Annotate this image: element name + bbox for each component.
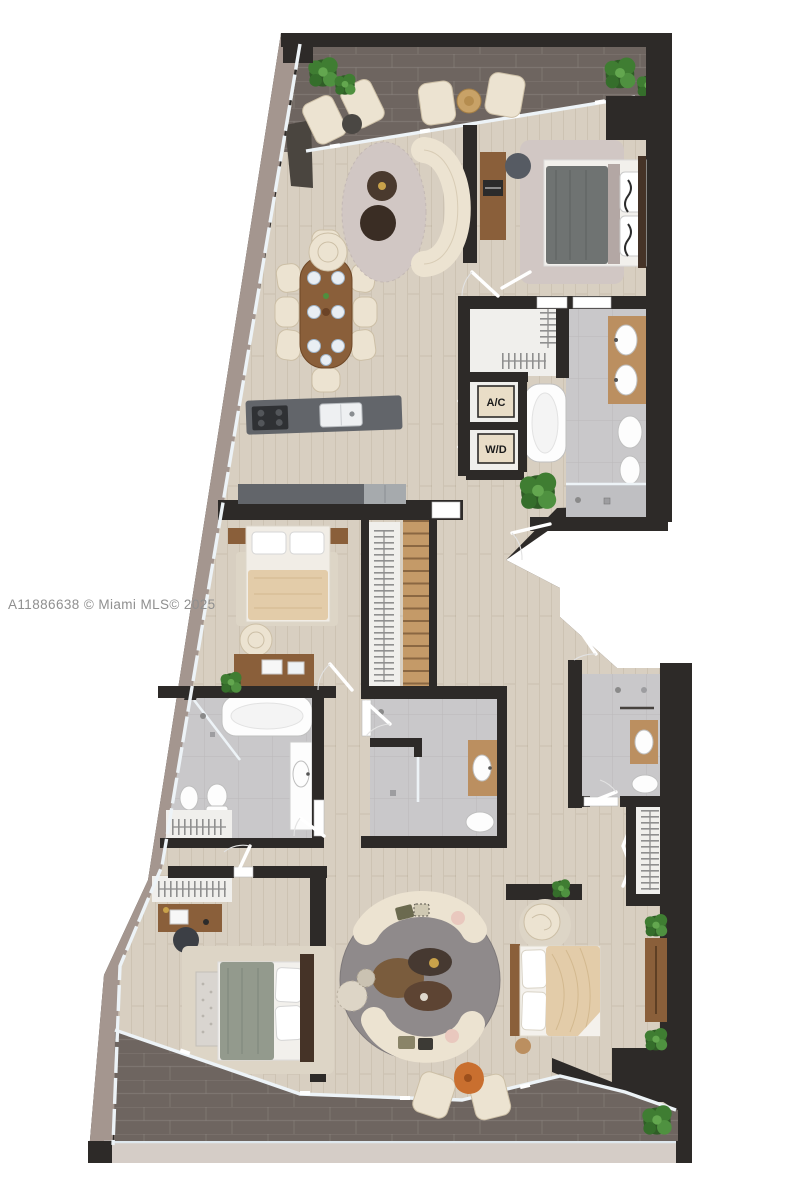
bidet	[620, 456, 640, 484]
floor-plan-page: A/C W/D	[0, 0, 802, 1200]
toilet	[207, 784, 227, 808]
shower-drain-icon	[390, 790, 396, 796]
shower-head-icon	[575, 497, 581, 503]
plant-icon	[520, 473, 556, 509]
plant-icon	[645, 914, 667, 936]
sink	[615, 365, 637, 395]
closet-hall-strip	[369, 522, 400, 688]
wall-block-top-right	[606, 96, 650, 140]
accent-chair	[309, 233, 347, 271]
headboard	[638, 156, 646, 268]
sink	[615, 325, 637, 355]
coffee-table	[360, 205, 396, 241]
toilet	[618, 416, 642, 448]
walk-in-closet	[470, 300, 556, 376]
pouf	[357, 969, 375, 987]
closet-office	[152, 876, 232, 902]
plant-icon	[221, 672, 242, 693]
laptop	[262, 660, 282, 674]
corner-block-bottom-left	[88, 1141, 112, 1163]
cooktop	[252, 405, 289, 430]
bed-throw	[608, 164, 620, 264]
accent-chair	[240, 624, 272, 656]
kitchen-back-counter	[238, 484, 364, 504]
round-chair	[524, 904, 560, 940]
pillow	[252, 532, 286, 554]
bathroom-center	[370, 694, 498, 838]
pillow	[521, 992, 546, 1031]
toilet	[632, 775, 658, 793]
plant-icon	[552, 879, 570, 897]
bidet	[180, 786, 198, 810]
shower-drain-icon	[641, 687, 647, 693]
papers	[288, 662, 304, 674]
desk-chair	[505, 153, 531, 179]
pillow	[418, 1038, 433, 1050]
pillow	[521, 950, 546, 989]
shower-drain-icon	[604, 498, 610, 504]
coffee-table	[404, 981, 452, 1011]
wd-label: W/D	[485, 444, 506, 456]
nightstand	[228, 528, 246, 544]
pillow	[398, 1036, 415, 1049]
headboard	[510, 944, 520, 1036]
desk-lamp	[163, 907, 169, 913]
toilet	[466, 812, 494, 832]
ac-label: A/C	[487, 397, 506, 409]
bed-blanket	[546, 166, 608, 264]
shower-head-icon	[200, 713, 206, 719]
side-table	[342, 114, 362, 134]
shower-drain-icon	[210, 732, 215, 737]
plant-icon	[605, 58, 636, 89]
throw-ball	[445, 1029, 459, 1043]
centerpiece	[322, 308, 330, 316]
pillow	[275, 967, 303, 1002]
plant-icon	[645, 1028, 667, 1050]
nightstand	[330, 528, 348, 544]
sink	[635, 730, 653, 754]
side-table	[515, 1038, 531, 1054]
plant-icon	[642, 1105, 671, 1134]
bedroom-3	[182, 946, 334, 1074]
headboard	[300, 954, 314, 1062]
shower-head-icon	[615, 687, 621, 693]
laptop	[170, 910, 188, 924]
watermark-text: A11886638 © Miami MLS© 2025	[8, 597, 216, 612]
wall-bedroom4-top	[506, 884, 582, 900]
tufted-bench	[196, 972, 218, 1046]
pillow	[414, 904, 429, 916]
wall-right-column	[660, 663, 692, 1163]
floor-plan-image: A/C W/D	[0, 0, 802, 1200]
pillow	[275, 1005, 303, 1040]
stairs	[403, 514, 430, 688]
bottom-edge-band	[88, 1141, 692, 1163]
pillow	[290, 532, 324, 554]
plant-icon	[335, 74, 356, 95]
bathroom-right	[582, 674, 660, 798]
throw-ball	[451, 911, 465, 925]
